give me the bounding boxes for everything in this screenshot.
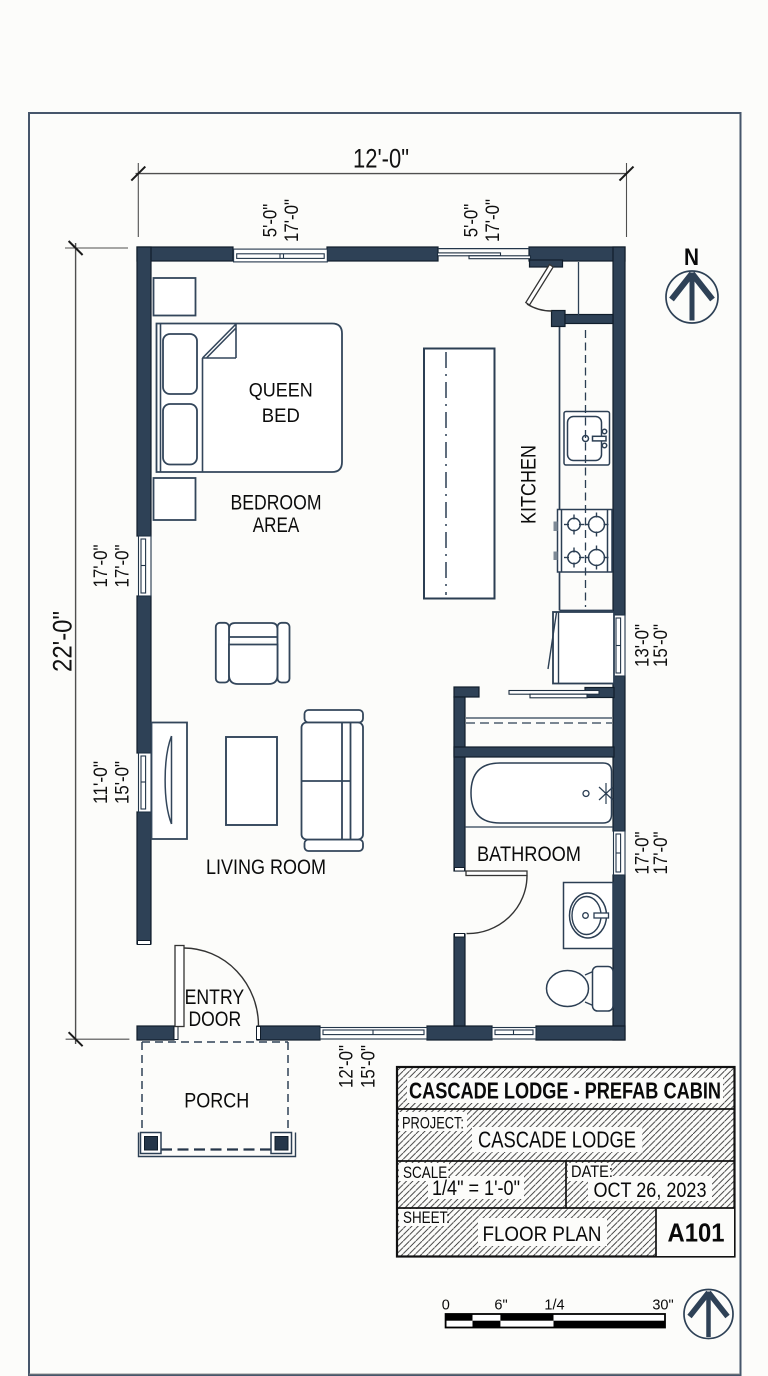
svg-text:12'-0": 12'-0" [353, 144, 409, 174]
svg-text:DOOR: DOOR [188, 1008, 241, 1031]
svg-text:OCT 26, 2023: OCT 26, 2023 [594, 1179, 707, 1202]
svg-text:PROJECT:: PROJECT: [402, 1114, 464, 1133]
svg-text:FLOOR PLAN: FLOOR PLAN [483, 1223, 602, 1246]
svg-text:17'-0": 17'-0" [281, 199, 303, 242]
svg-text:30": 30" [652, 1298, 673, 1314]
svg-text:1/4: 1/4 [544, 1298, 564, 1314]
svg-text:PORCH: PORCH [184, 1090, 249, 1113]
svg-text:15'-0": 15'-0" [112, 761, 134, 804]
svg-text:0: 0 [442, 1298, 450, 1314]
svg-text:ENTRY: ENTRY [185, 986, 245, 1009]
svg-text:LIVING ROOM: LIVING ROOM [206, 856, 326, 879]
svg-text:BEDROOM: BEDROOM [231, 491, 322, 514]
svg-text:17'-0": 17'-0" [482, 199, 504, 242]
svg-text:BATHROOM: BATHROOM [477, 843, 581, 866]
svg-text:22'-0": 22'-0" [48, 611, 78, 672]
svg-text:17'-0": 17'-0" [112, 544, 134, 587]
svg-text:17'-0": 17'-0" [90, 544, 112, 587]
svg-text:5'-0": 5'-0" [461, 204, 483, 238]
svg-text:CASCADE LODGE - PREFAB CABIN: CASCADE LODGE - PREFAB CABIN [409, 1078, 721, 1104]
svg-text:15'-0": 15'-0" [358, 1045, 380, 1088]
svg-text:SHEET:: SHEET: [403, 1208, 450, 1227]
svg-text:11'-0": 11'-0" [90, 761, 112, 804]
svg-text:1/4" = 1'-0": 1/4" = 1'-0" [432, 1177, 520, 1200]
svg-text:17'-0": 17'-0" [650, 831, 672, 874]
svg-text:15'-0": 15'-0" [650, 624, 672, 667]
svg-text:6": 6" [494, 1298, 507, 1314]
svg-text:QUEEN: QUEEN [249, 381, 313, 402]
svg-text:5'-0": 5'-0" [259, 204, 281, 238]
svg-text:BED: BED [262, 406, 300, 427]
svg-text:KITCHEN: KITCHEN [518, 445, 541, 524]
svg-text:AREA: AREA [253, 514, 299, 537]
svg-text:CASCADE LODGE: CASCADE LODGE [478, 1127, 636, 1153]
svg-text:N: N [684, 244, 699, 271]
svg-text:12'-0": 12'-0" [336, 1045, 358, 1088]
svg-text:A101: A101 [668, 1218, 725, 1248]
